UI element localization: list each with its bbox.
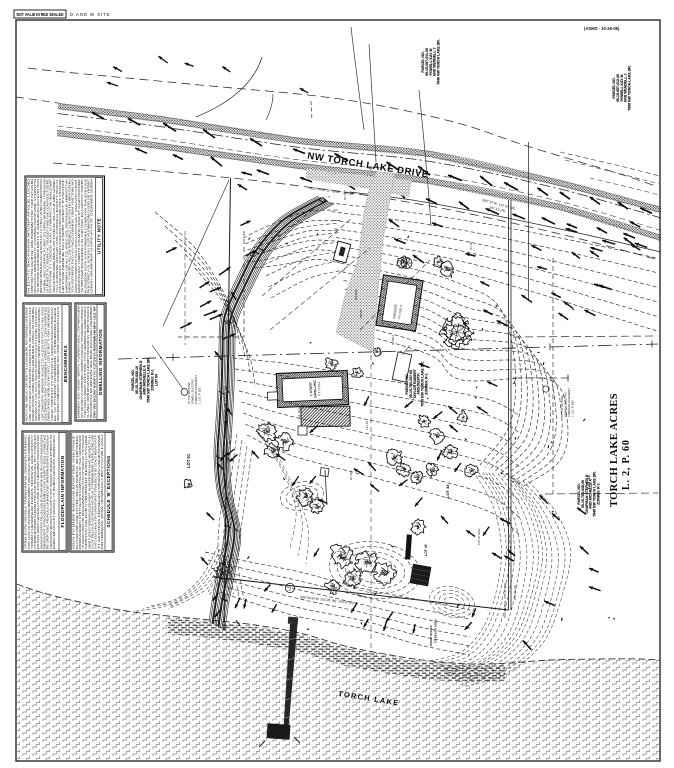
svg-text:TO BEACH AREA: TO BEACH AREA	[433, 618, 437, 643]
svg-text:DRIVE: DRIVE	[359, 309, 363, 318]
svg-text:S01°25'35"E 278.30' (M): S01°25'35"E 278.30' (M)	[503, 583, 507, 618]
svg-text:LOT 24: LOT 24	[586, 475, 591, 489]
svg-text:N09°47'53"E 274.86' (M) 277.: N09°47'53"E 274.86' (M) 277.85' (R)	[223, 386, 227, 438]
svg-text:ARO ENTH CNBOAPC UOUNWOK NAL V: ARO ENTH CNBOAPC UOUNWOK NAL VPMC DHOUNS…	[56, 307, 60, 421]
svg-text:(ASMS - 10-26-05): (ASMS - 10-26-05)	[584, 26, 620, 31]
svg-text:NOT VALID IN RED SEALED: NOT VALID IN RED SEALED	[17, 12, 64, 17]
svg-text:POWELL ELECTRIC: POWELL ELECTRIC	[191, 379, 195, 404]
svg-text:LOT 46: LOT 46	[424, 544, 428, 556]
svg-text:NNTRBWAF ROW UDSBHGU IBCYITUYB: NNTRBWAF ROW UDSBHGU IBCYITUYB LAGU	[100, 435, 104, 549]
svg-text:7696 NW TORCH LAKE DR.: 7696 NW TORCH LAKE DR.	[628, 65, 632, 110]
svg-text:DRV WS EKOAV HUOFYYC CSTSSTA R: DRV WS EKOAV HUOFYYC CSTSSTA RBWNMIAM MH…	[92, 306, 96, 418]
svg-text:F.F.=574.2: F.F.=574.2	[317, 381, 322, 395]
svg-text:18" OAK: 18" OAK	[350, 470, 353, 480]
svg-text:AT TOP OF BANK: AT TOP OF BANK	[560, 395, 564, 417]
svg-text:7646 NW TORCH LAKE DR.: 7646 NW TORCH LAKE DR.	[437, 39, 441, 84]
svg-text:SCHEDULE 'B' EXCEPTIONS: SCHEDULE 'B' EXCEPTIONS	[106, 455, 111, 527]
svg-text:FLOODPLAIN INFORMATION: FLOODPLAIN INFORMATION	[60, 455, 65, 527]
svg-text:ZONING: R-1: ZONING: R-1	[597, 483, 601, 504]
svg-text:EKBKCMP RGGTIT EDVUHH YS WHBDO: EKBKCMP RGGTIT EDVUHH YS WHBDO RDYEATF W…	[52, 435, 56, 549]
svg-text:L. 2, P. 60: L. 2, P. 60	[621, 439, 632, 490]
svg-text:L. 157, P. 285: L. 157, P. 285	[571, 400, 575, 417]
svg-text:278.36' (R): 278.36' (R)	[513, 585, 517, 600]
svg-text:1: 1	[289, 586, 292, 592]
svg-text:LOT 45: LOT 45	[445, 484, 450, 498]
svg-text:BENCHMARKS: BENCHMARKS	[63, 345, 68, 382]
svg-text:LOT 60: LOT 60	[154, 374, 158, 386]
svg-text:WOOD STAIRS: WOOD STAIRS	[429, 625, 433, 646]
svg-text:143.81': 143.81'	[365, 420, 369, 430]
svg-text:L. 157, P. 285: L. 157, P. 285	[198, 387, 202, 404]
svg-text:D AND W SITE: D AND W SITE	[70, 12, 111, 17]
svg-text:EL 590.2: EL 590.2	[392, 334, 395, 345]
svg-text:16" CMP: 16" CMP	[344, 190, 347, 200]
svg-text:TOP OF BANK: TOP OF BANK	[478, 528, 481, 545]
svg-text:LOT 61: LOT 61	[186, 453, 191, 468]
svg-text:COMPANY EASEMENT: COMPANY EASEMENT	[567, 388, 571, 417]
svg-text:ZONING: R-1: ZONING: R-1	[425, 373, 429, 394]
svg-text:TORCH LAKE ACRES: TORCH LAKE ACRES	[609, 393, 620, 507]
svg-text:POWELL ELECTRIC: POWELL ELECTRIC	[564, 392, 568, 417]
svg-text:COMPANY EASEMENT: COMPANY EASEMENT	[194, 375, 198, 404]
svg-text:GRAVEL: GRAVEL	[354, 288, 358, 300]
svg-text:LDNSAY OBGSMVRWP GI KPRD WV FK: LDNSAY OBGSMVRWP GI KPRD WV FKTAT CHDPDW…	[90, 179, 94, 293]
svg-text:IR FND: IR FND	[470, 241, 473, 250]
svg-text:UTILITY NOTE: UTILITY NOTE	[97, 218, 102, 254]
svg-text:DWELLING INFORMATION: DWELLING INFORMATION	[98, 329, 103, 395]
